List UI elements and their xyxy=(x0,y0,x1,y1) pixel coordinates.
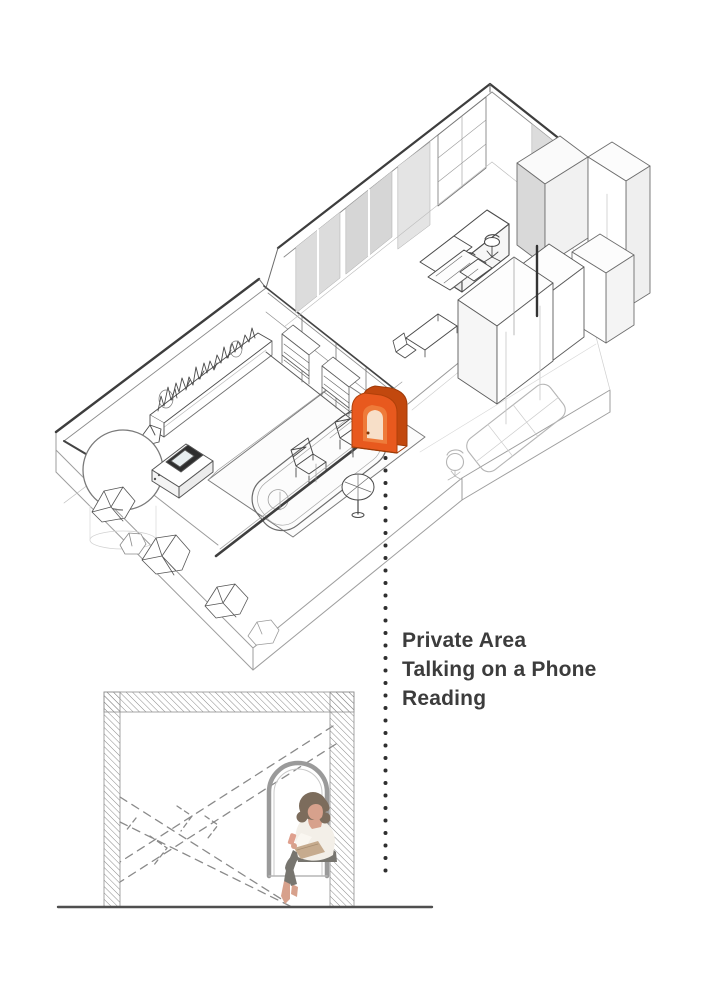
lower-leg-skin xyxy=(281,881,290,904)
section-detail xyxy=(58,692,432,907)
annotation-line-3: Reading xyxy=(402,684,597,713)
person-reading-illustration xyxy=(281,792,337,904)
annotation-line-2: Talking on a Phone xyxy=(402,655,597,684)
dining-desk xyxy=(393,314,457,358)
second-foot xyxy=(291,884,298,897)
console-desk xyxy=(152,444,213,498)
architectural-diagram xyxy=(0,0,707,1000)
annotation-caption: Private Area Talking on a Phone Reading xyxy=(402,626,597,713)
presentation-board: Private Area Talking on a Phone Reading xyxy=(0,0,707,1000)
hand xyxy=(291,843,297,849)
office-chair-ghost xyxy=(447,450,464,480)
kitchen-back-wall xyxy=(266,84,492,327)
slatted-bench xyxy=(282,325,320,384)
planter-with-plants xyxy=(142,328,272,445)
faceted-rocks xyxy=(92,487,279,645)
axonometric-floorplan xyxy=(56,84,650,670)
annotation-line-1: Private Area xyxy=(402,626,597,655)
round-side-table xyxy=(342,474,374,518)
arch-niche-highlight xyxy=(352,386,407,453)
